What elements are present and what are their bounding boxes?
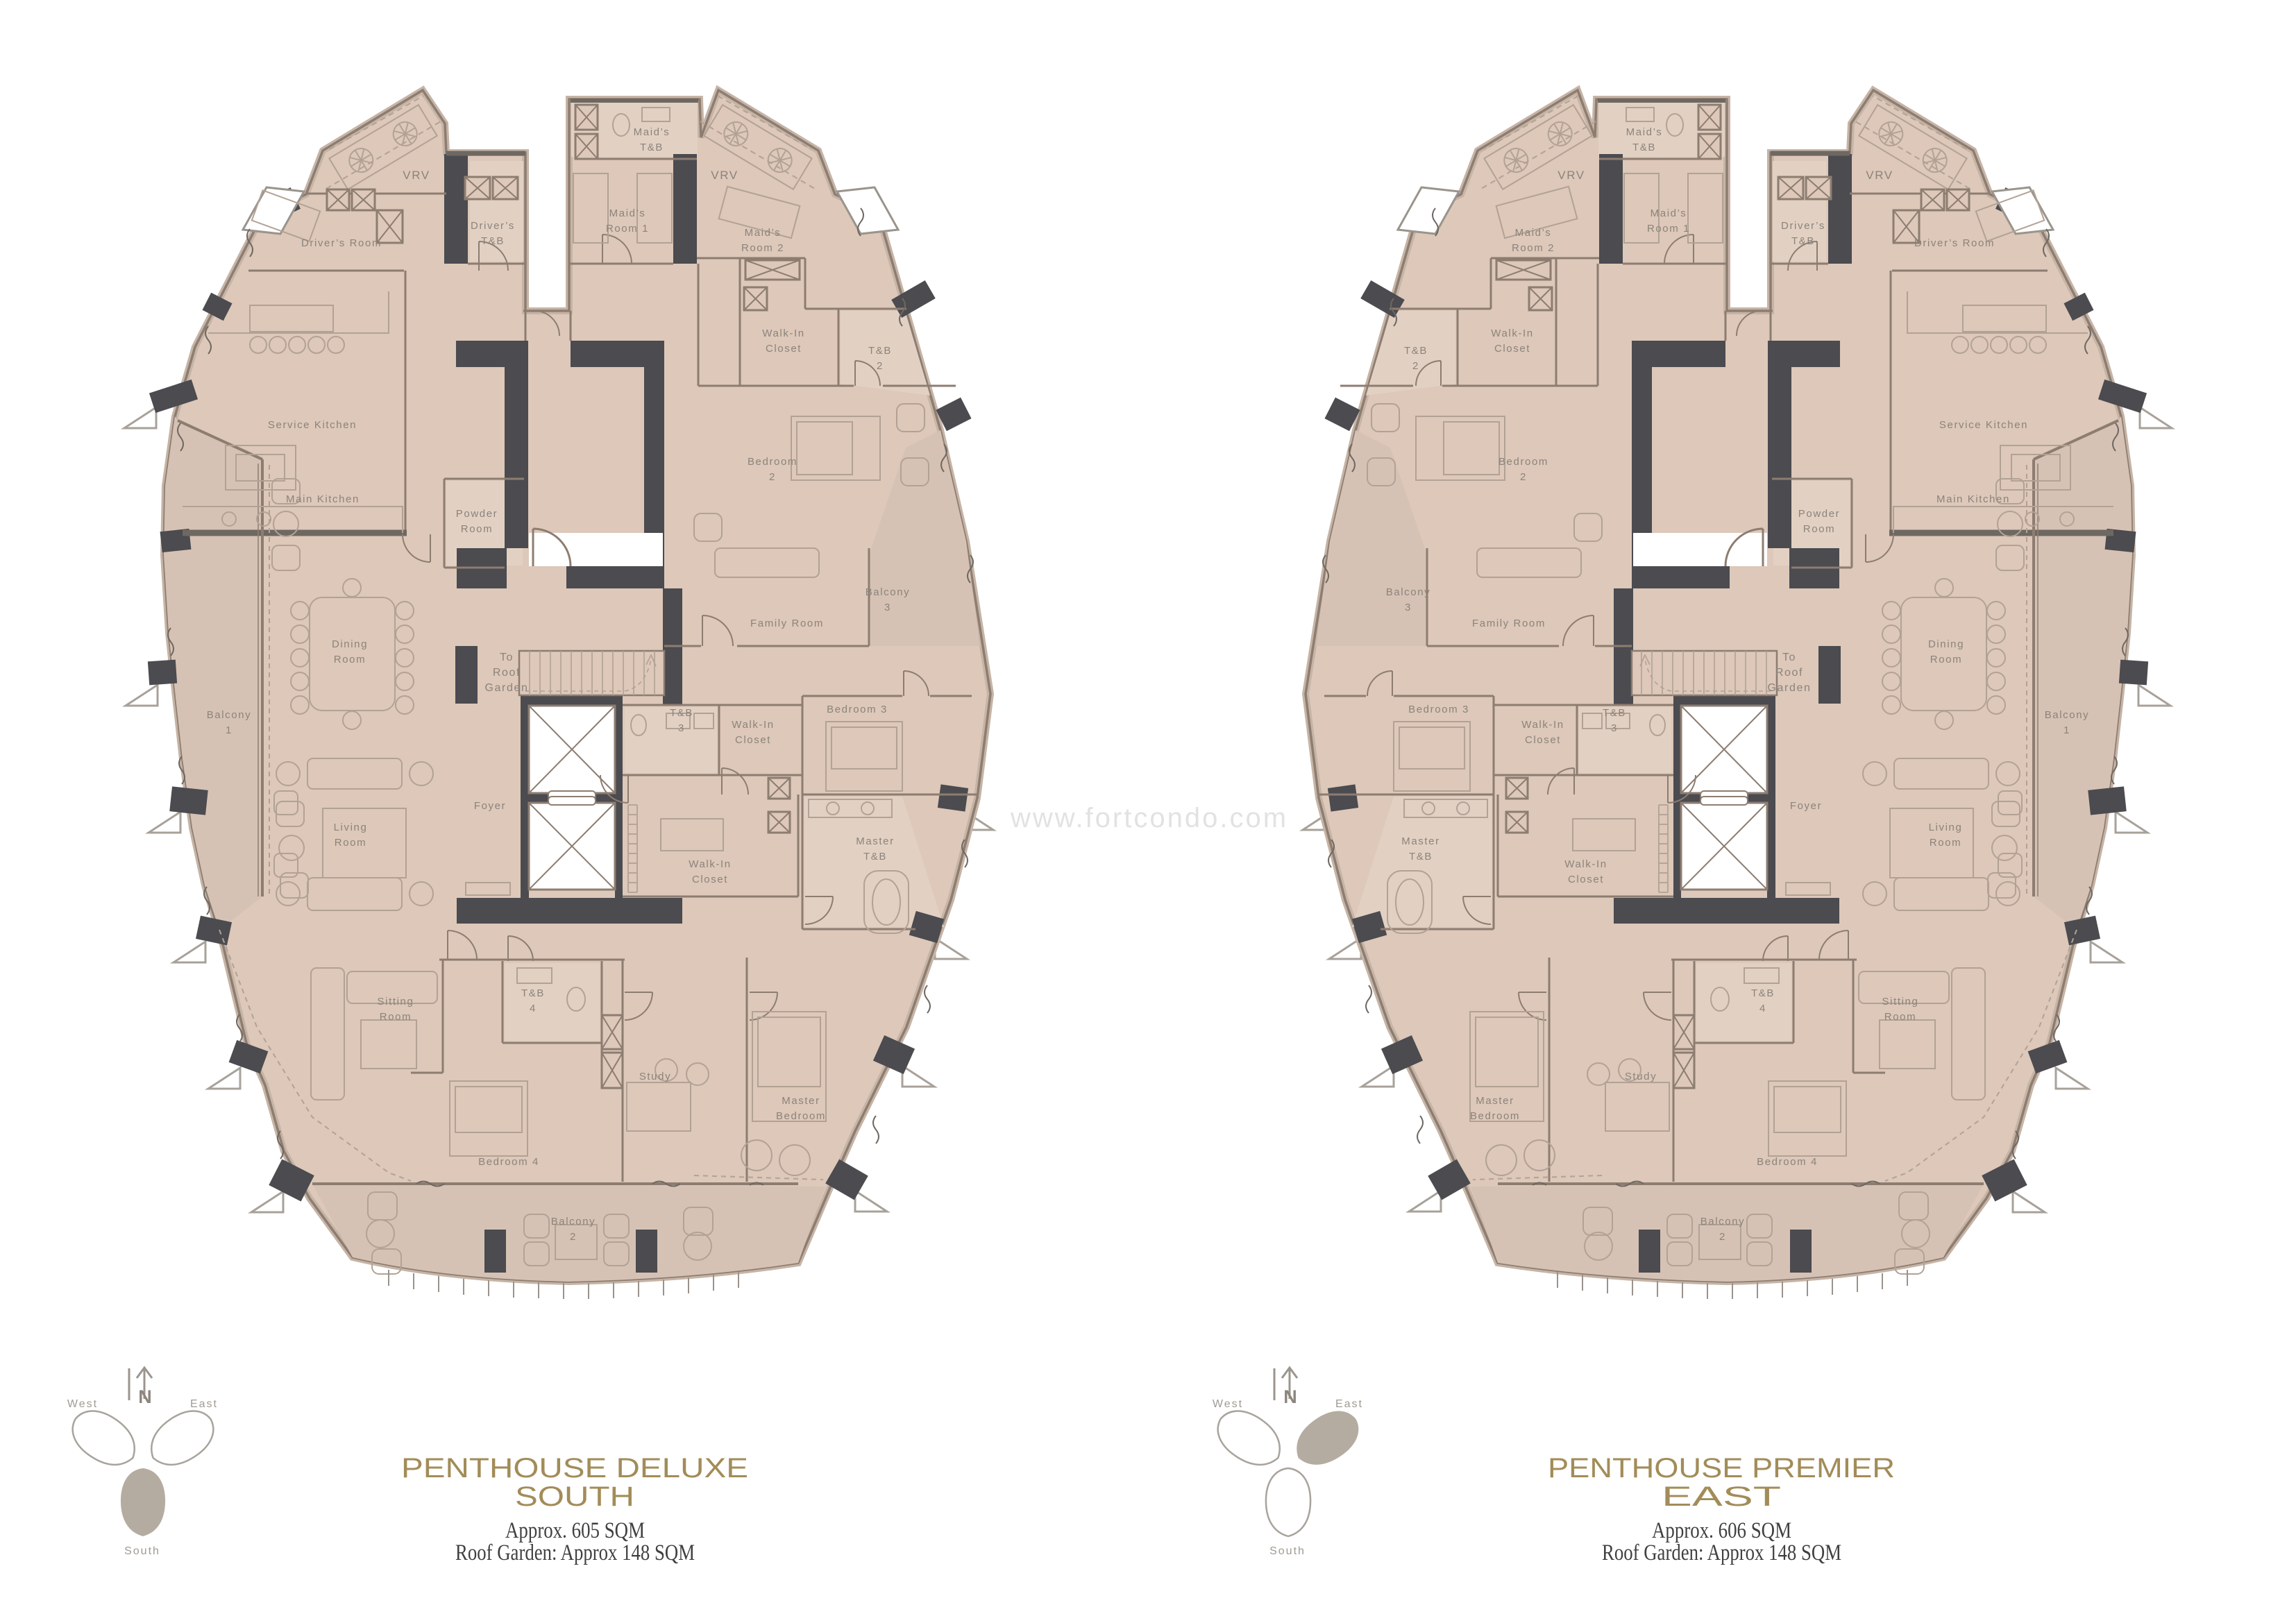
svg-text:Service Kitchen: Service Kitchen xyxy=(1939,419,2028,431)
svg-text:Foyer: Foyer xyxy=(474,800,506,812)
svg-text:Foyer: Foyer xyxy=(1790,800,1822,812)
svg-text:Roof Garden: Approx 148 SQM: Roof Garden: Approx 148 SQM xyxy=(1602,1540,1841,1565)
svg-text:South: South xyxy=(1269,1545,1306,1557)
svg-text:N: N xyxy=(138,1386,152,1407)
svg-text:Family Room: Family Room xyxy=(750,618,824,629)
svg-text:VRV: VRV xyxy=(711,169,738,182)
svg-text:West: West xyxy=(67,1398,98,1410)
svg-text:South: South xyxy=(124,1545,160,1557)
svg-text:West: West xyxy=(1213,1398,1243,1410)
svg-text:Study: Study xyxy=(639,1071,671,1082)
svg-text:Service Kitchen: Service Kitchen xyxy=(268,419,357,431)
svg-text:VRV: VRV xyxy=(1558,169,1585,182)
svg-text:www.fortcondo.com: www.fortcondo.com xyxy=(1010,803,1288,833)
svg-text:Approx. 605 SQM: Approx. 605 SQM xyxy=(505,1518,645,1543)
svg-text:Main Kitchen: Main Kitchen xyxy=(1936,493,2010,505)
svg-text:VRV: VRV xyxy=(403,169,430,182)
svg-text:East: East xyxy=(190,1398,218,1410)
svg-text:N: N xyxy=(1283,1386,1297,1407)
svg-text:VRV: VRV xyxy=(1866,169,1893,182)
svg-text:Bedroom 3: Bedroom 3 xyxy=(827,704,888,715)
svg-text:Family Room: Family Room xyxy=(1472,618,1546,629)
svg-text:PENTHOUSE DELUXE: PENTHOUSE DELUXE xyxy=(401,1453,748,1484)
svg-text:Main Kitchen: Main Kitchen xyxy=(286,493,360,505)
svg-text:Roof Garden: Approx 148 SQM: Roof Garden: Approx 148 SQM xyxy=(455,1540,695,1565)
svg-text:Driver’s Room: Driver’s Room xyxy=(1914,237,1995,249)
svg-text:East: East xyxy=(1335,1398,1363,1410)
svg-text:Bedroom 4: Bedroom 4 xyxy=(478,1156,539,1168)
svg-text:EAST: EAST xyxy=(1662,1481,1781,1512)
svg-text:Study: Study xyxy=(1625,1071,1657,1082)
svg-text:SOUTH: SOUTH xyxy=(515,1481,634,1512)
svg-text:Bedroom 4: Bedroom 4 xyxy=(1757,1156,1818,1168)
svg-text:Approx. 606 SQM: Approx. 606 SQM xyxy=(1652,1518,1791,1543)
svg-text:PENTHOUSE PREMIER: PENTHOUSE PREMIER xyxy=(1548,1453,1895,1484)
svg-text:Bedroom 3: Bedroom 3 xyxy=(1408,704,1469,715)
svg-text:Driver’s Room: Driver’s Room xyxy=(301,237,382,249)
